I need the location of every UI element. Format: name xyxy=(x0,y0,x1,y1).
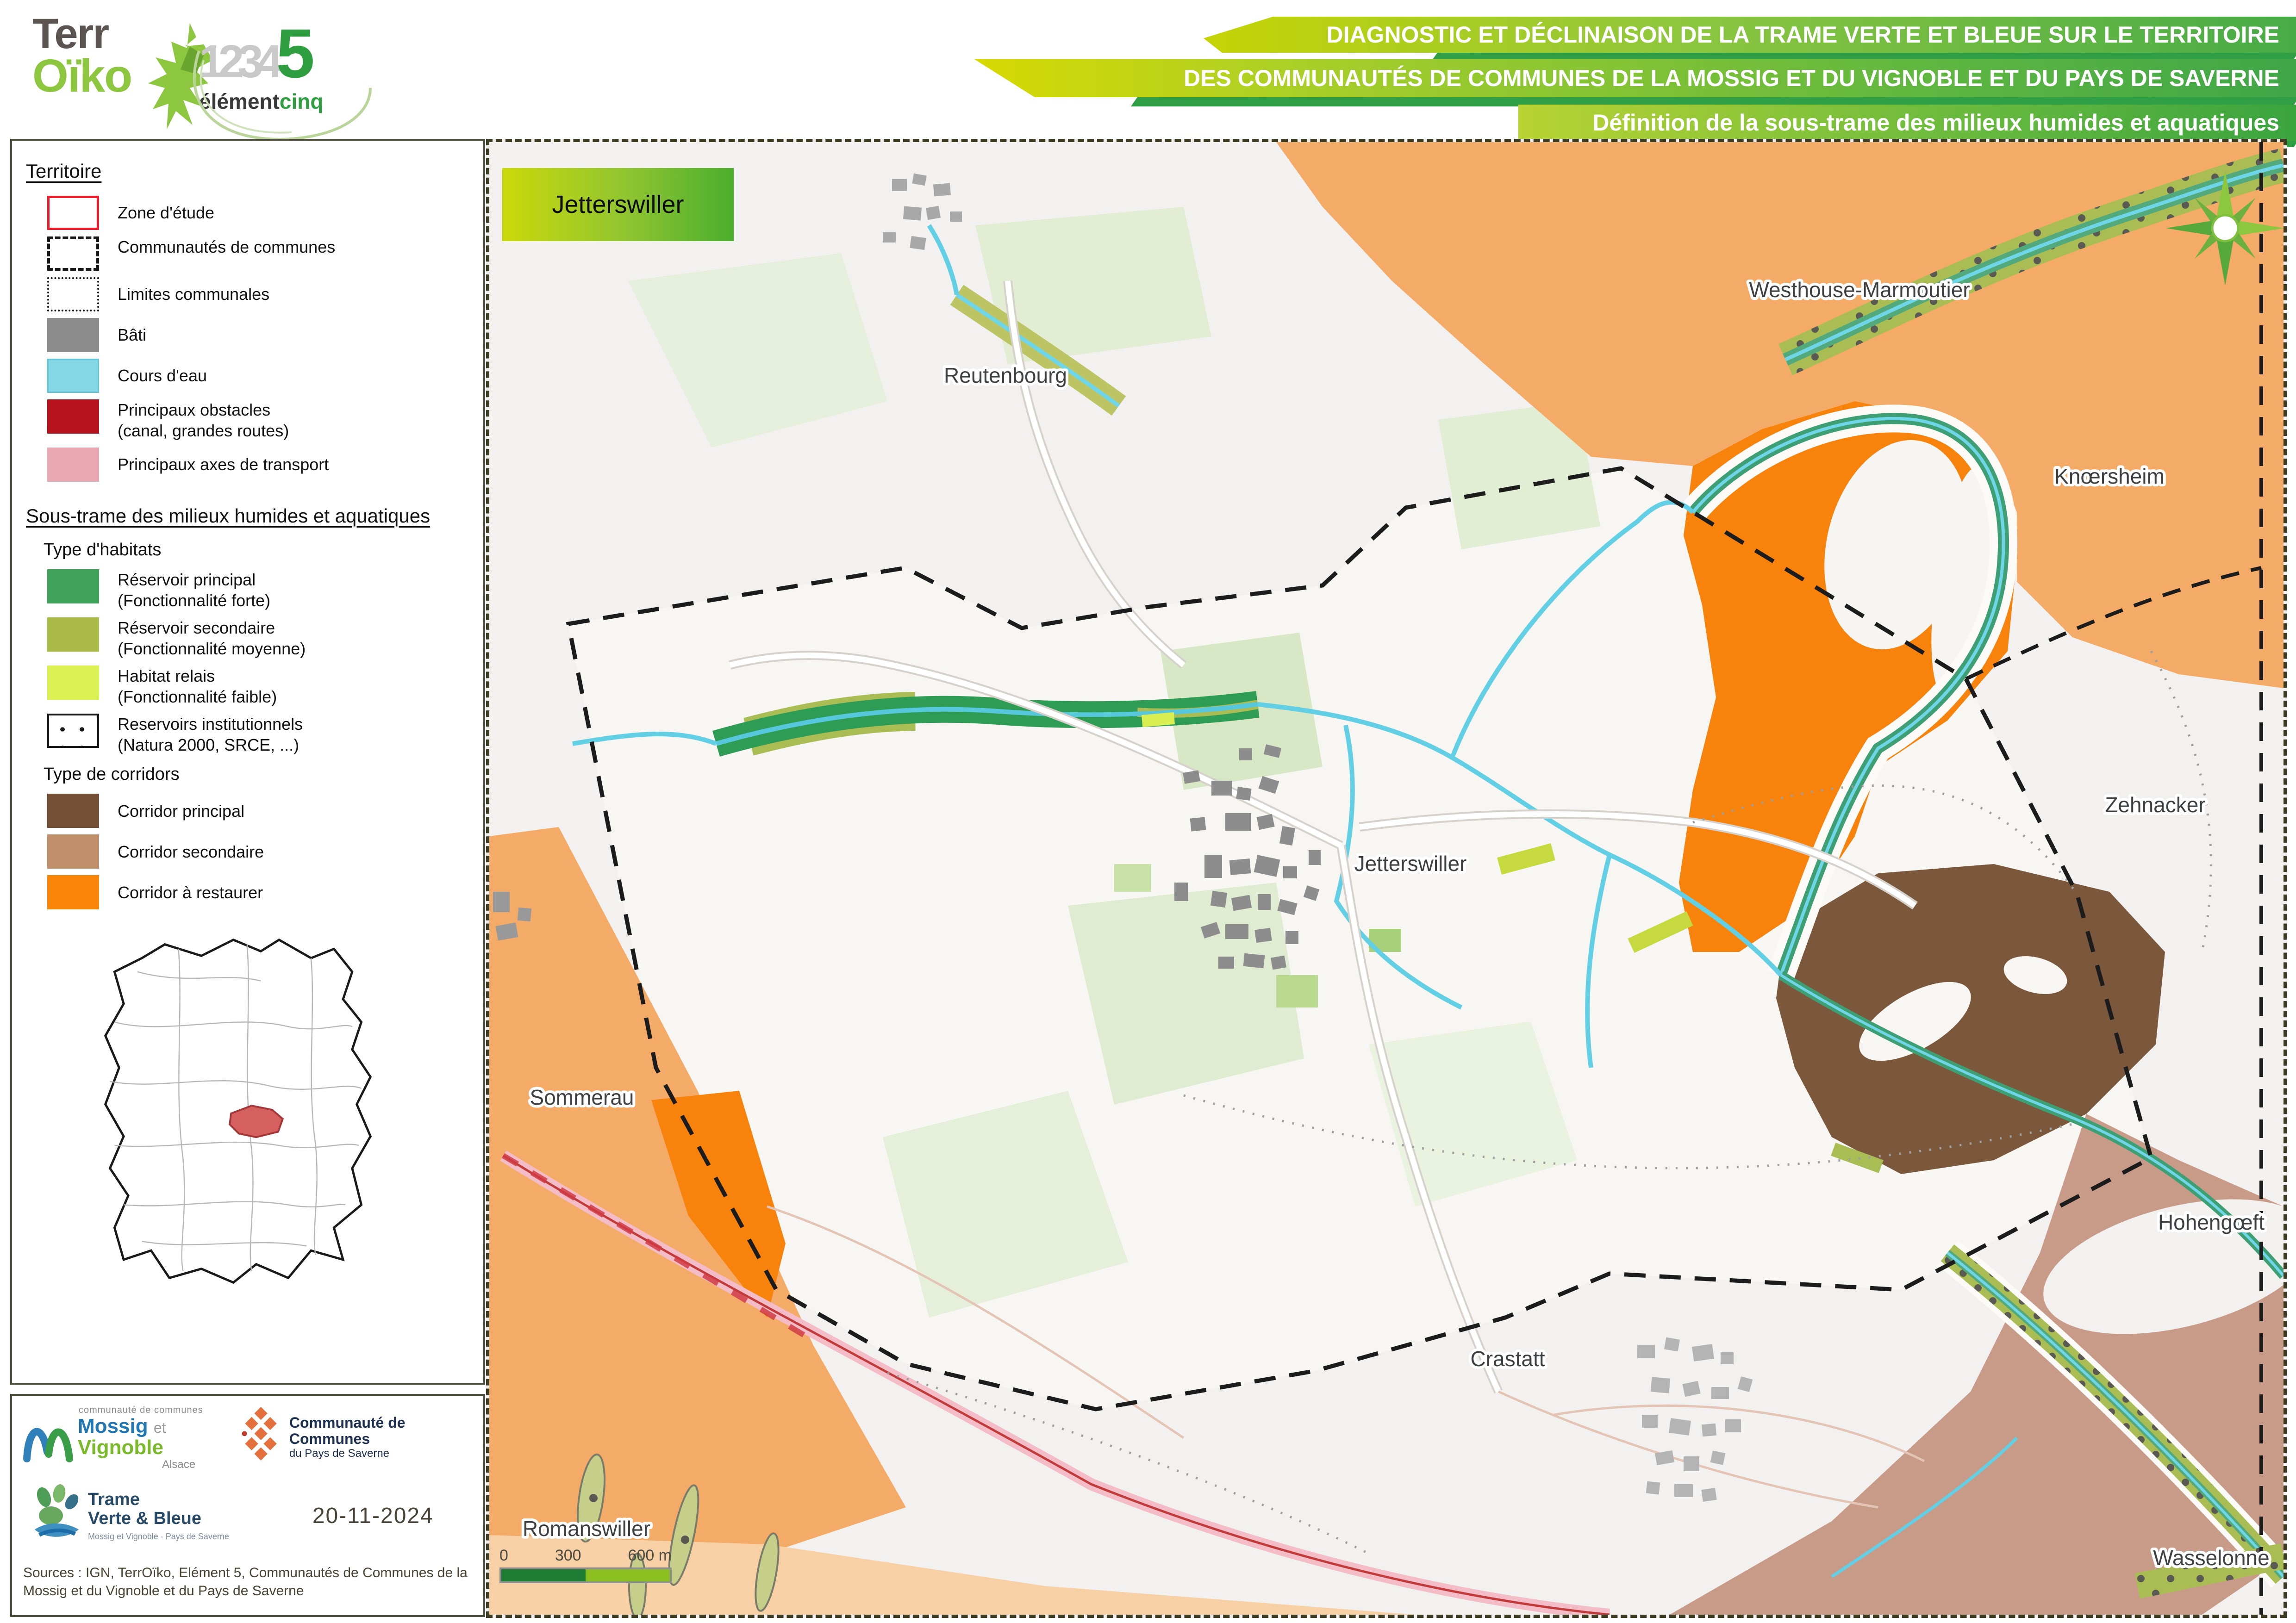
zone-etude-swatch xyxy=(47,196,99,230)
map-label-romanswiller: Romanswiller xyxy=(523,1517,650,1541)
legend-item-bati: Bâti xyxy=(47,318,470,352)
corridor-secondaire-swatch xyxy=(47,834,99,869)
credits-panel: communauté de communes Mossig et Vignobl… xyxy=(10,1394,485,1617)
reservoirs-institutionnels-swatch xyxy=(47,714,99,748)
map-label-zehnacker: Zehnacker xyxy=(2105,793,2205,817)
scale-tick-600: 600 m xyxy=(628,1547,672,1565)
map-date: 20-11-2024 xyxy=(312,1503,434,1529)
trame-verte-bleue-wordmark: Trame Verte & Bleue Mossig et Vignoble -… xyxy=(88,1490,229,1542)
legend-habitats-subtitle: Type d'habitats xyxy=(44,540,470,560)
legend-territoire-title: Territoire xyxy=(26,159,470,184)
map-label-crastatt: Crastatt xyxy=(1470,1347,1545,1371)
map-label-jetterswiller: Jetterswiller xyxy=(1354,852,1467,876)
map-label-wasselonne: Wasselonne xyxy=(2153,1546,2269,1570)
legend-item-habitat-relais: Habitat relais (Fonctionnalité faible) xyxy=(47,665,470,707)
corridor-restaurer-swatch xyxy=(47,875,99,909)
legend-item-cours-eau: Cours d'eau xyxy=(47,359,470,393)
map-label-reutenbourg: Reutenbourg xyxy=(944,363,1067,387)
element5-swoosh-icon xyxy=(181,32,375,155)
map-canvas[interactable]: Reutenbourg Westhouse-Marmoutier Knœrshe… xyxy=(489,142,2284,1615)
banner-streak xyxy=(1432,52,2296,60)
map-frame: Reutenbourg Westhouse-Marmoutier Knœrshe… xyxy=(486,139,2287,1618)
map-label-westhouse: Westhouse-Marmoutier xyxy=(1749,278,1970,302)
element5-logo: 12345 élémentcinq xyxy=(199,19,352,114)
trame-verte-bleue-icon xyxy=(23,1483,88,1548)
mossig-vignoble-logo: communauté de communes Mossig et Vignobl… xyxy=(23,1405,222,1471)
limites-communales-swatch xyxy=(47,277,99,311)
legend-item-reservoir-secondaire: Réservoir secondaire (Fonctionnalité moy… xyxy=(47,617,470,659)
legend-item-corridor-restaurer: Corridor à restaurer xyxy=(47,875,470,909)
mossig-m-icon xyxy=(23,1408,74,1463)
legend-item-corridor-principal: Corridor principal xyxy=(47,794,470,828)
corridor-principal-swatch xyxy=(47,794,99,828)
reservoir-secondaire-swatch xyxy=(47,617,99,652)
scale-bar: 0 300 600 m xyxy=(499,1547,672,1583)
reservoir-principal-swatch xyxy=(47,569,99,603)
bati-swatch xyxy=(47,318,99,352)
legend-corridors-subtitle: Type de corridors xyxy=(44,765,470,784)
legend-item-axes-transport: Principaux axes de transport xyxy=(47,448,470,482)
legend-item-obstacles: Principaux obstacles (canal, grandes rou… xyxy=(47,399,470,441)
banner-line-1: DIAGNOSTIC ET DÉCLINAISON DE LA TRAME VE… xyxy=(1204,17,2296,53)
communautes-communes-swatch xyxy=(47,236,99,271)
scale-tick-300: 300 xyxy=(555,1547,581,1565)
legend-item-zone-etude: Zone d'étude xyxy=(47,196,470,230)
saverne-diamonds-icon xyxy=(240,1405,281,1470)
cours-eau-swatch xyxy=(47,359,99,393)
map-label-knoersheim: Knœrsheim xyxy=(2054,464,2165,488)
banner-line-2: DES COMMUNAUTÉS DE COMMUNES DE LA MOSSIG… xyxy=(974,59,2296,97)
legend-panel: Territoire Zone d'étude Communautés de c… xyxy=(10,139,485,1385)
legend-soustrame-title: Sous-trame des milieux humides et aquati… xyxy=(26,504,433,529)
locator-inset-map xyxy=(94,931,470,1294)
terroiko-logo: Terr Oïko xyxy=(32,14,190,98)
axes-transport-swatch xyxy=(47,448,99,482)
map-title-box: Jetterswiller xyxy=(502,168,734,241)
legend-item-corridor-secondaire: Corridor secondaire xyxy=(47,834,470,869)
habitat-relais-swatch xyxy=(47,665,99,700)
legend-item-reservoir-principal: Réservoir principal (Fonctionnalité fort… xyxy=(47,569,470,611)
obstacles-swatch xyxy=(47,399,99,434)
banner-line-3: Définition de la sous-trame des milieux … xyxy=(1518,105,2296,141)
sources-text: Sources : IGN, TerrOïko, Elément 5, Comm… xyxy=(23,1564,468,1600)
map-label-hohengoeft: Hohengœft xyxy=(2158,1210,2265,1234)
page: Terr Oïko 12345 élémentcinq DIAGNOSTIC E… xyxy=(0,0,2296,1623)
map-label-sommerau: Sommerau xyxy=(530,1085,634,1109)
legend-item-communautes: Communautés de communes xyxy=(47,236,470,271)
scale-bar-graphic xyxy=(499,1567,672,1583)
legend-item-limites: Limites communales xyxy=(47,277,470,311)
scale-tick-0: 0 xyxy=(499,1547,508,1565)
legend-item-reservoirs-institutionnels: Reservoirs institutionnels (Natura 2000,… xyxy=(47,714,470,755)
pays-saverne-logo: Communauté de Communes du Pays de Savern… xyxy=(240,1405,472,1470)
